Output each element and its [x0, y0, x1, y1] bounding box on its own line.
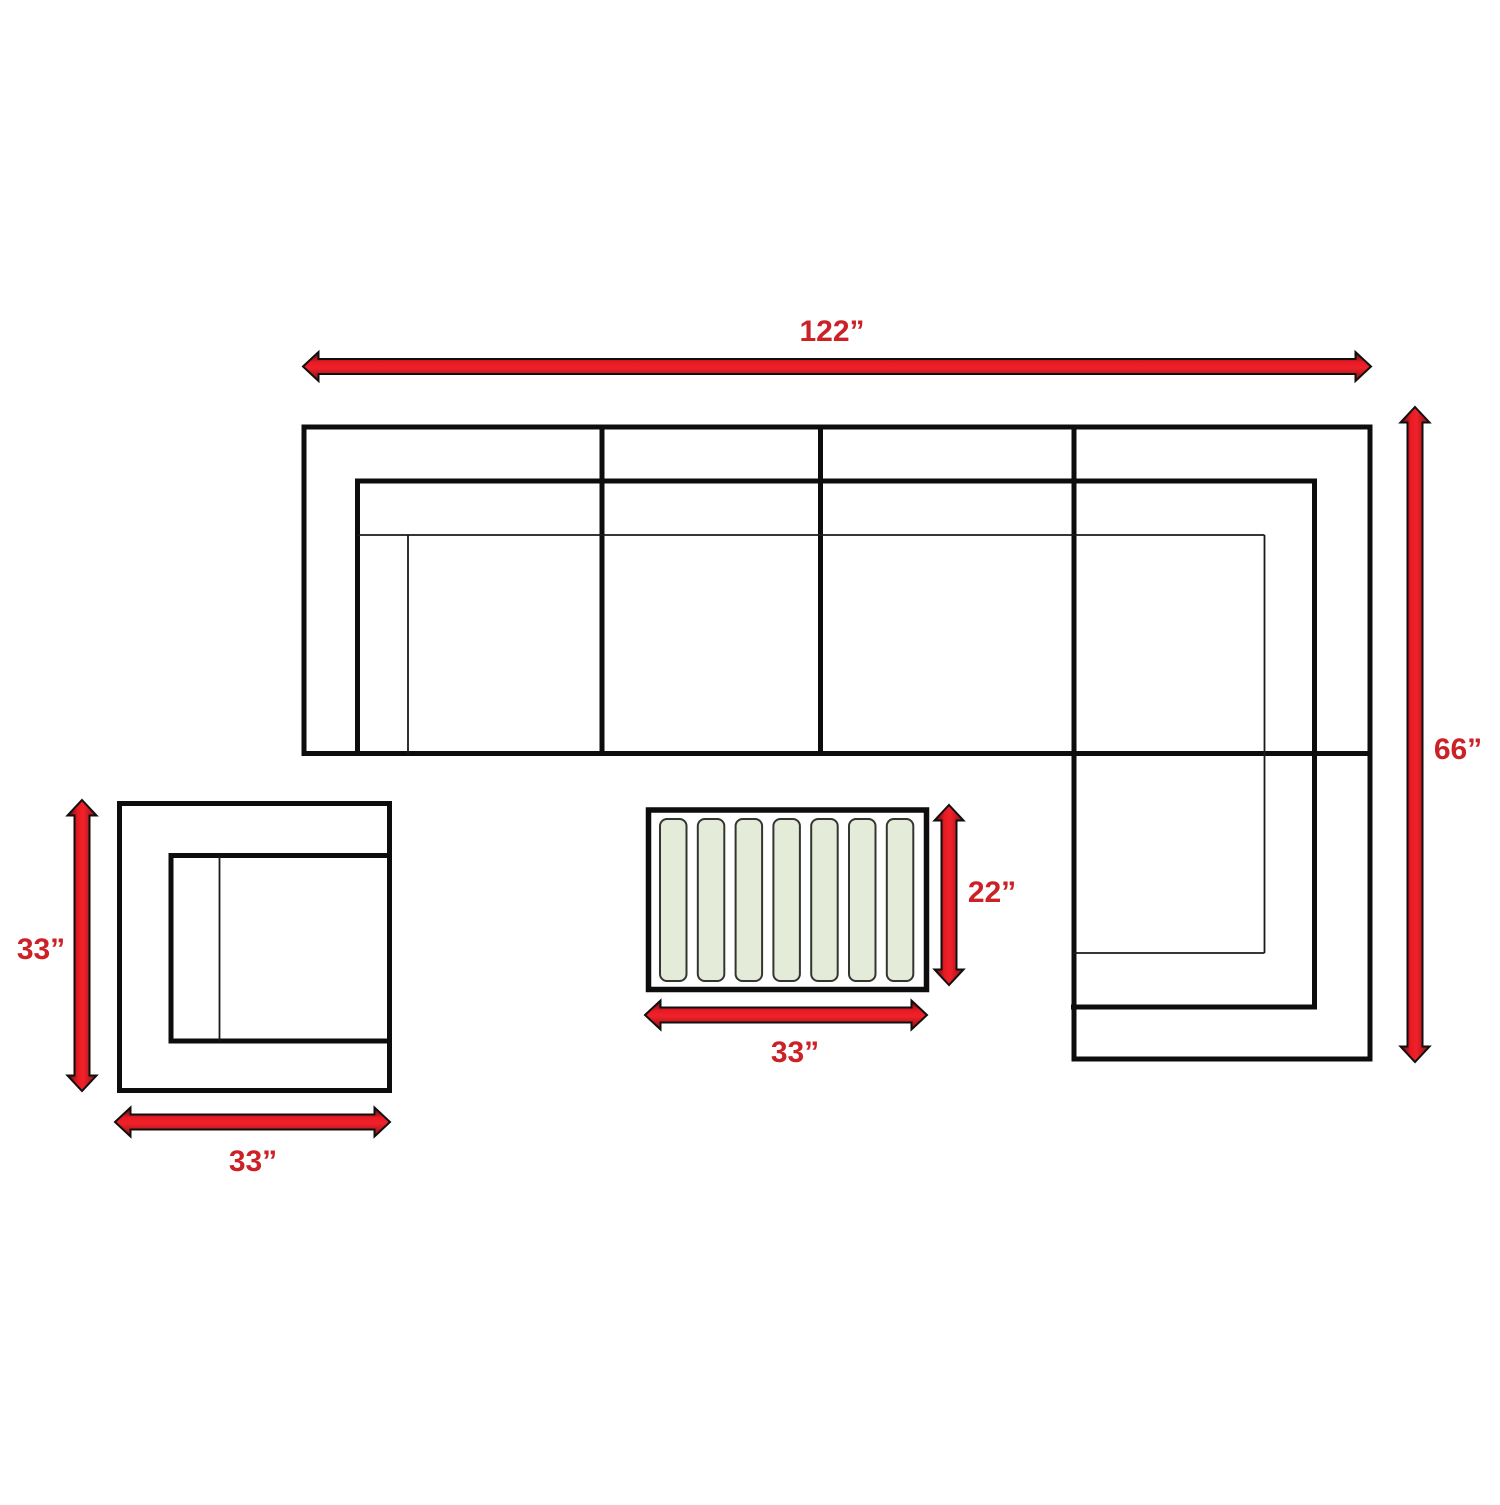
- svg-text:33”: 33”: [17, 933, 65, 966]
- svg-text:122”: 122”: [799, 315, 864, 348]
- svg-text:22”: 22”: [968, 876, 1016, 909]
- svg-text:33”: 33”: [771, 1036, 819, 1069]
- svg-text:33”: 33”: [229, 1145, 277, 1178]
- svg-text:66”: 66”: [1434, 733, 1482, 766]
